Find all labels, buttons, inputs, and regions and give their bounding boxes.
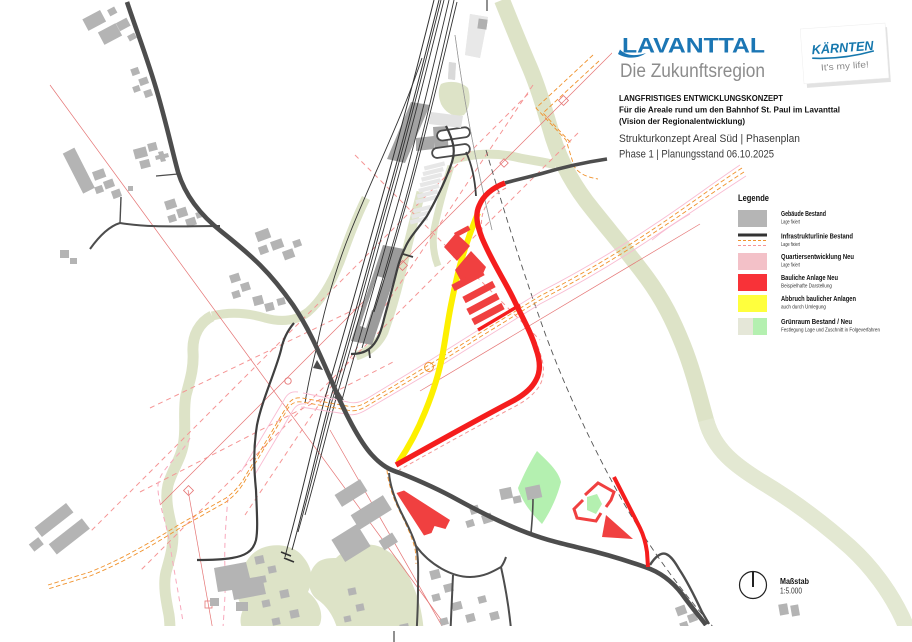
svg-text:1:5.000: 1:5.000 xyxy=(780,587,803,596)
svg-text:Die Zukunftsregion: Die Zukunftsregion xyxy=(620,60,765,82)
svg-text:Quartiersentwicklung Neu: Quartiersentwicklung Neu xyxy=(781,252,854,261)
svg-text:Festlegung Lage und Zuschnitt: Festlegung Lage und Zuschnitt in Folgeve… xyxy=(781,328,880,334)
svg-text:Abbruch baulicher Anlagen: Abbruch baulicher Anlagen xyxy=(781,294,856,303)
svg-text:Für die Areale rund um den Bah: Für die Areale rund um den Bahnhof St. P… xyxy=(619,105,840,115)
svg-text:Maßstab: Maßstab xyxy=(780,577,809,586)
svg-text:auch durch Umlegung: auch durch Umlegung xyxy=(781,305,826,311)
svg-text:Lage fixiert: Lage fixiert xyxy=(781,263,800,269)
svg-text:Legende: Legende xyxy=(738,193,769,203)
svg-text:Lage fixiert: Lage fixiert xyxy=(781,220,800,226)
svg-text:Bauliche Anlage Neu: Bauliche Anlage Neu xyxy=(781,273,838,282)
svg-text:Grünraum Bestand / Neu: Grünraum Bestand / Neu xyxy=(781,317,852,326)
svg-text:LANGFRISTIGES ENTWICKLUNGSKONZ: LANGFRISTIGES ENTWICKLUNGSKONZEPT xyxy=(619,93,784,103)
svg-text:Lage fixiert: Lage fixiert xyxy=(781,242,800,248)
svg-text:(Vision der Regionalentwicklun: (Vision der Regionalentwicklung) xyxy=(619,116,745,126)
svg-text:Strukturkonzept Areal Süd | Ph: Strukturkonzept Areal Süd | Phasenplan xyxy=(619,133,800,145)
svg-text:Phase 1 | Planungsstand 06.10.: Phase 1 | Planungsstand 06.10.2025 xyxy=(619,149,774,161)
svg-text:Gebäude Bestand: Gebäude Bestand xyxy=(781,209,826,218)
svg-text:Infrastrukturlinie Bestand: Infrastrukturlinie Bestand xyxy=(781,232,853,241)
svg-text:Beispielhafte Darstellung: Beispielhafte Darstellung xyxy=(781,284,832,290)
